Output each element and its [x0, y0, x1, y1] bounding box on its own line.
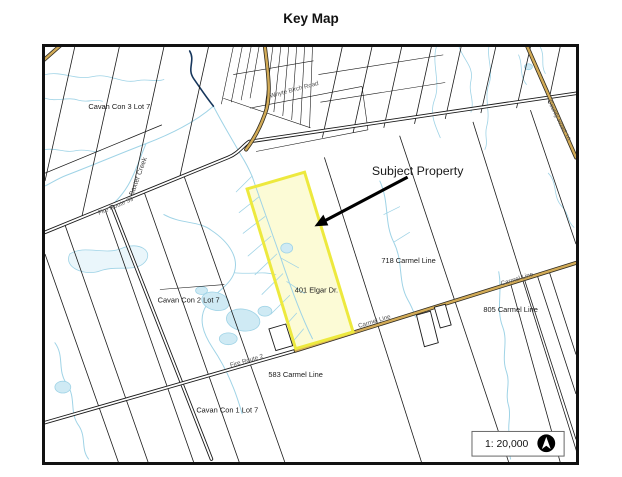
- small-lot: [417, 311, 439, 346]
- label-401-elgar: 401 Elgar Dr.: [295, 285, 338, 294]
- scale-box: 1: 20,000: [472, 431, 564, 456]
- label-583-carmel: 583 Carmel Line: [268, 370, 322, 379]
- label-805-carmel: 805 Carmel Line: [483, 305, 537, 314]
- label-cavan-con2: Cavan Con 2 Lot 7: [158, 295, 220, 304]
- label-subject-property: Subject Property: [372, 164, 464, 178]
- label-cavan-con3: Cavan Con 3 Lot 7: [88, 102, 150, 111]
- key-map-frame: Cavan Con 3 Lot 7 Cavan Con 2 Lot 7 Cava…: [42, 44, 579, 465]
- north-arrow-icon: [537, 434, 555, 452]
- subject-property-annotation: Subject Property: [314, 164, 464, 226]
- scale-text: 1: 20,000: [485, 439, 529, 450]
- map-canvas: Cavan Con 3 Lot 7 Cavan Con 2 Lot 7 Cava…: [45, 47, 576, 462]
- label-718-carmel: 718 Carmel Line: [381, 256, 435, 265]
- label-county-road-10: County Road 10: [545, 99, 571, 143]
- small-lot: [434, 304, 451, 328]
- page-title: Key Map: [0, 11, 622, 26]
- label-cavan-con1: Cavan Con 1 Lot 7: [196, 406, 258, 415]
